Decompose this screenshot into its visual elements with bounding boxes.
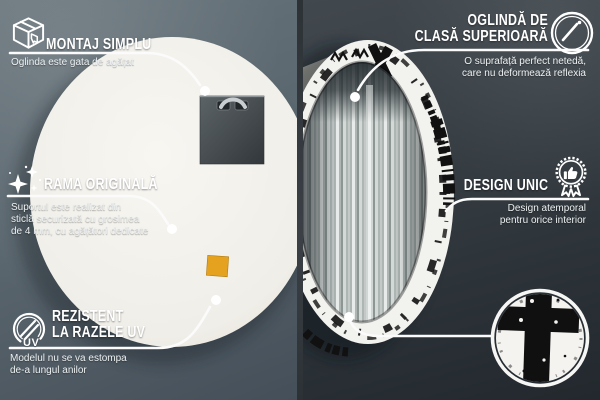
product-infographic: MONTAJ SIMPLU Oglinda este gata de agăța…	[0, 0, 600, 400]
clasa-desc: O suprafață perfect netedă, care nu defo…	[462, 56, 586, 80]
leader-dot-clasa	[350, 92, 360, 102]
uv-circle-icon: UV	[8, 310, 50, 352]
montaj-desc: Oglinda este gata de agățat	[11, 57, 134, 69]
thumbs-up-glyph	[564, 167, 578, 179]
uv-desc-line2: de-a lungul anilor	[10, 365, 127, 377]
uv-title-line2: LA RAZELE UV	[52, 325, 145, 341]
clasa-title-line2: CLASĂ SUPERIOARĂ	[415, 29, 548, 45]
rama-title: RAMA ORIGINALĂ	[44, 177, 158, 193]
rama-desc-line3: de 4 mm, cu agățători dedicate	[11, 226, 148, 238]
pattern-detail-zoom	[493, 291, 588, 386]
design-desc: Design atemporal pentru orice interior	[500, 203, 586, 227]
orange-sticker	[206, 255, 228, 276]
clasa-title-line1: OGLINDĂ DE	[415, 13, 548, 29]
leader-dot-montaj	[200, 86, 210, 96]
sparkles-icon	[7, 163, 43, 204]
award-badge-icon	[550, 156, 592, 205]
leader-dot-detail	[344, 312, 354, 322]
mirror-shine-icon	[549, 10, 595, 61]
uv-desc: Modelul nu se va estompa de-a lungul ani…	[10, 353, 127, 377]
rama-desc-line1: Suportul este realizat din	[11, 202, 148, 214]
uv-title: REZISTENT LA RAZELE UV	[52, 309, 171, 341]
mounting-plate	[200, 96, 264, 164]
leader-dot-rama	[167, 224, 177, 234]
clasa-desc-line2: care nu deformează reflexia	[462, 68, 586, 80]
uv-icon-label: UV	[23, 337, 39, 349]
rama-desc-line2: sticlă securizată cu grosimea	[11, 214, 148, 226]
uv-desc-line1: Modelul nu se va estompa	[10, 353, 127, 365]
uv-title-line1: REZISTENT	[52, 309, 145, 325]
design-title: DESIGN UNIC	[464, 178, 548, 194]
clasa-title: OGLINDĂ DE CLASĂ SUPERIOARĂ	[377, 13, 548, 45]
design-desc-line2: pentru orice interior	[500, 215, 586, 227]
clasa-desc-line1: O suprafață perfect netedă,	[462, 56, 586, 68]
package-box-icon	[10, 15, 47, 56]
rama-desc: Suportul este realizat din sticlă securi…	[11, 202, 148, 239]
leader-dot-uv	[211, 295, 221, 305]
design-desc-line1: Design atemporal	[500, 203, 586, 215]
montaj-title: MONTAJ SIMPLU	[46, 37, 151, 53]
